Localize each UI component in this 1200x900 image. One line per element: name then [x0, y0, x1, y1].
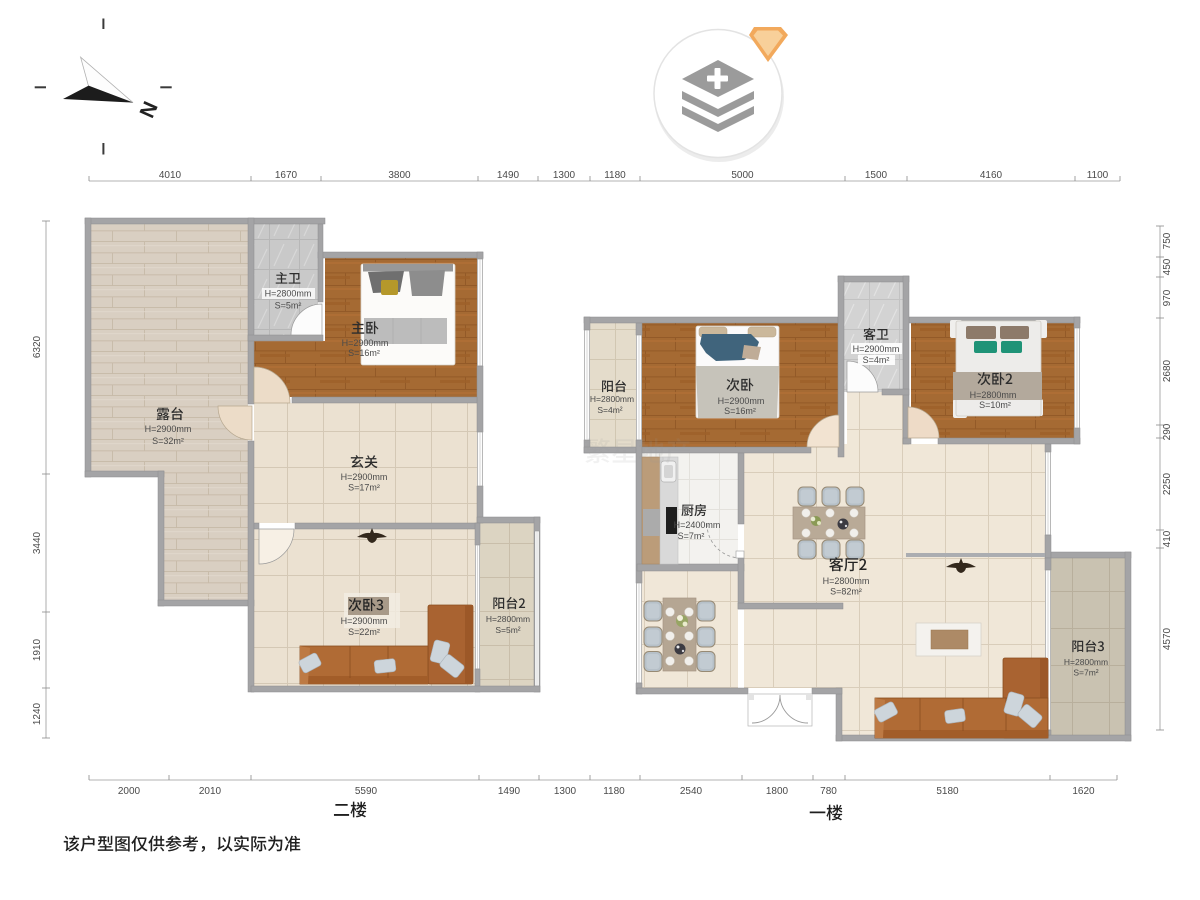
- svg-text:6320: 6320: [32, 335, 43, 358]
- svg-text:2250: 2250: [1162, 472, 1173, 495]
- svg-text:3440: 3440: [32, 531, 43, 554]
- svg-text:H=2800mm: H=2800mm: [970, 390, 1017, 400]
- svg-text:1180: 1180: [604, 170, 626, 181]
- svg-text:1910: 1910: [32, 638, 43, 661]
- svg-text:4160: 4160: [980, 170, 1003, 181]
- svg-text:970: 970: [1162, 289, 1173, 306]
- svg-text:5000: 5000: [731, 170, 754, 181]
- svg-text:S=4m²: S=4m²: [597, 405, 622, 415]
- svg-text:5180: 5180: [936, 786, 959, 797]
- svg-text:H=2900mm: H=2900mm: [853, 344, 900, 354]
- svg-text:H=2400mm: H=2400mm: [674, 520, 721, 530]
- svg-text:1240: 1240: [32, 702, 43, 725]
- svg-text:S=82m²: S=82m²: [830, 587, 862, 597]
- svg-text:410: 410: [1162, 530, 1173, 547]
- svg-text:H=2800mm: H=2800mm: [823, 576, 870, 586]
- svg-text:3800: 3800: [388, 170, 411, 181]
- svg-text:H=2900mm: H=2900mm: [342, 338, 389, 348]
- svg-text:S=16m²: S=16m²: [348, 348, 380, 358]
- svg-text:S=7m²: S=7m²: [1073, 668, 1098, 678]
- svg-text:1620: 1620: [1072, 786, 1095, 797]
- svg-text:1180: 1180: [603, 786, 625, 797]
- svg-text:S=10m²: S=10m²: [979, 400, 1011, 410]
- svg-text:2010: 2010: [199, 786, 222, 797]
- svg-text:4010: 4010: [159, 170, 182, 181]
- svg-text:780: 780: [820, 786, 837, 797]
- svg-text:H=2800mm: H=2800mm: [590, 394, 634, 404]
- svg-text:H=2800mm: H=2800mm: [486, 614, 530, 624]
- svg-text:S=5m²: S=5m²: [495, 625, 520, 635]
- svg-text:1490: 1490: [498, 786, 521, 797]
- svg-text:1500: 1500: [865, 170, 888, 181]
- svg-text:H=2800mm: H=2800mm: [1064, 657, 1108, 667]
- svg-text:H=2900mm: H=2900mm: [718, 396, 765, 406]
- svg-text:1100: 1100: [1087, 170, 1109, 181]
- svg-text:H=2900mm: H=2900mm: [145, 424, 192, 434]
- svg-text:1670: 1670: [275, 170, 298, 181]
- svg-text:4570: 4570: [1162, 627, 1173, 650]
- svg-text:H=2800mm: H=2800mm: [265, 289, 312, 299]
- svg-text:S=22m²: S=22m²: [348, 627, 380, 637]
- svg-text:S=5m²: S=5m²: [275, 301, 302, 311]
- svg-text:450: 450: [1162, 258, 1173, 275]
- svg-text:750: 750: [1162, 232, 1173, 249]
- svg-text:S=16m²: S=16m²: [724, 406, 756, 416]
- svg-text:S=4m²: S=4m²: [863, 355, 890, 365]
- svg-text:2000: 2000: [118, 786, 141, 797]
- svg-text:290: 290: [1162, 423, 1173, 440]
- svg-text:2540: 2540: [680, 786, 703, 797]
- svg-text:S=7m²: S=7m²: [678, 531, 705, 541]
- svg-text:1490: 1490: [497, 170, 520, 181]
- svg-text:1800: 1800: [766, 786, 789, 797]
- svg-text:2680: 2680: [1162, 359, 1173, 382]
- svg-text:H=2900mm: H=2900mm: [341, 472, 388, 482]
- svg-text:1300: 1300: [554, 786, 577, 797]
- svg-text:H=2900mm: H=2900mm: [341, 616, 388, 626]
- svg-text:S=17m²: S=17m²: [348, 483, 380, 493]
- svg-text:1300: 1300: [553, 170, 576, 181]
- svg-text:5590: 5590: [355, 786, 378, 797]
- svg-text:S=32m²: S=32m²: [152, 436, 184, 446]
